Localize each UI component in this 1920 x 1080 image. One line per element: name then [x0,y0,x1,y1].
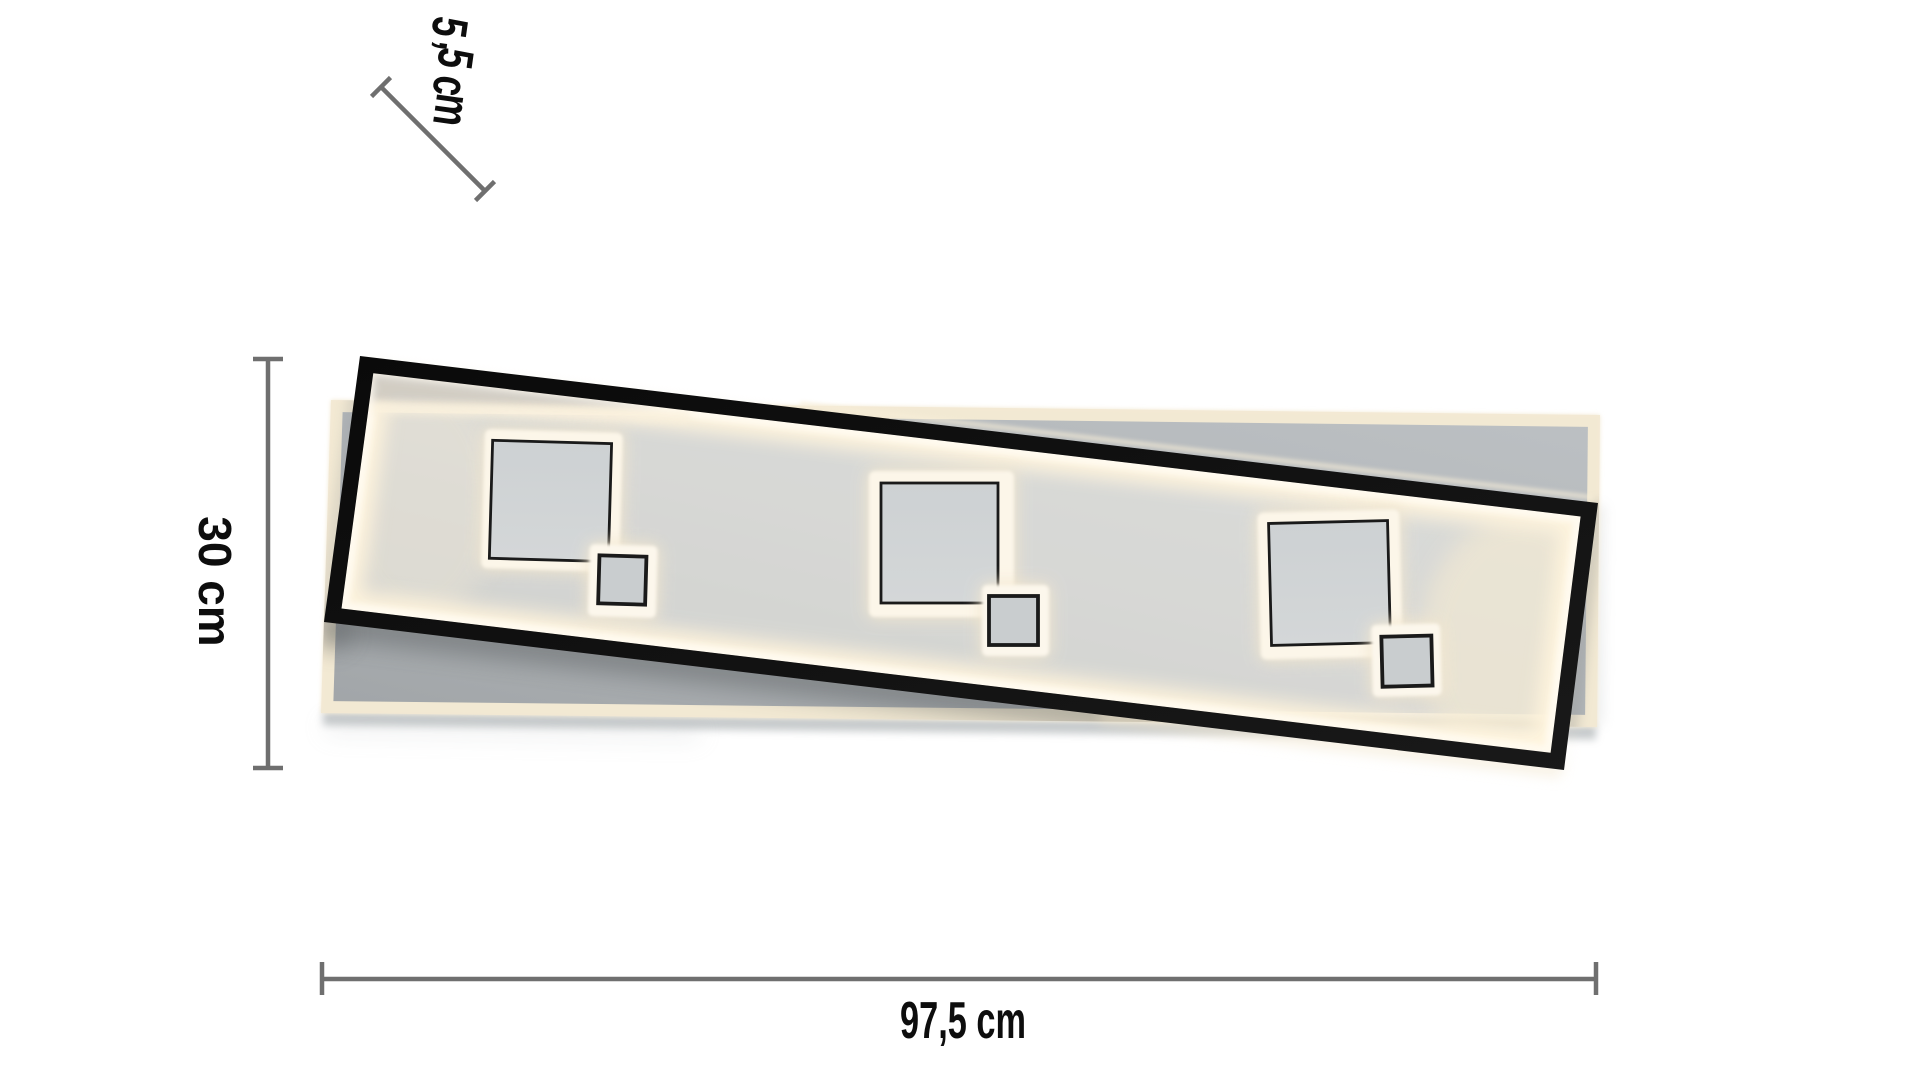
svg-text:30 cm: 30 cm [189,516,241,646]
svg-text:97,5 cm: 97,5 cm [900,992,1026,1050]
